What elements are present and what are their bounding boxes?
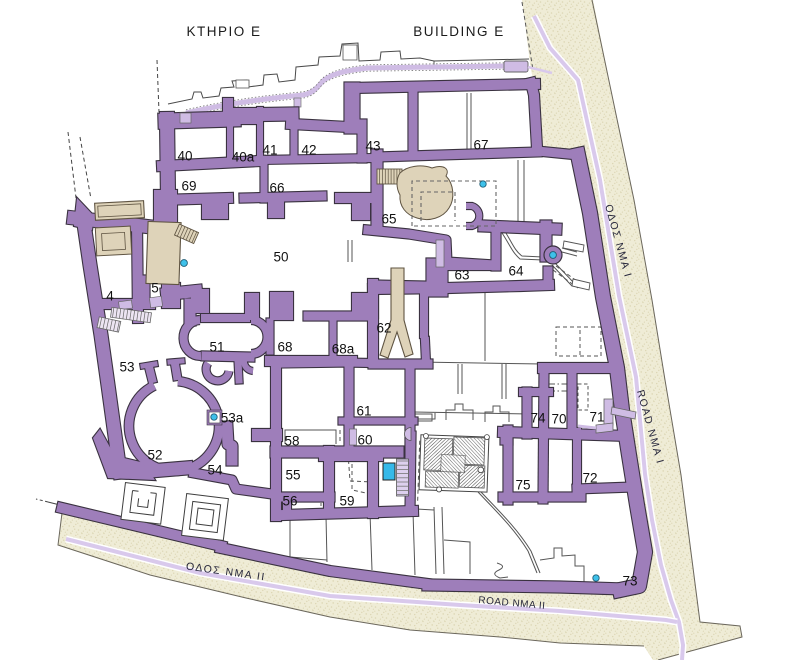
svg-text:54: 54 [207, 463, 223, 478]
svg-text:65: 65 [381, 212, 396, 227]
svg-text:52: 52 [147, 448, 162, 463]
svg-text:68a: 68a [332, 342, 355, 357]
svg-text:74: 74 [530, 411, 546, 426]
svg-text:40: 40 [177, 149, 192, 164]
svg-text:53a: 53a [221, 411, 244, 426]
svg-text:67: 67 [473, 138, 488, 153]
svg-text:55: 55 [285, 468, 300, 483]
svg-text:75: 75 [515, 478, 530, 493]
svg-text:68: 68 [277, 340, 292, 355]
svg-text:59: 59 [339, 494, 354, 509]
svg-text:58: 58 [284, 434, 299, 449]
svg-text:53: 53 [119, 360, 134, 375]
svg-text:63: 63 [454, 268, 469, 283]
svg-text:69: 69 [181, 179, 196, 194]
svg-text:43: 43 [365, 139, 380, 154]
svg-text:40a: 40a [232, 150, 255, 165]
svg-text:66: 66 [269, 181, 284, 196]
svg-text:41: 41 [262, 143, 277, 158]
svg-text:71: 71 [589, 410, 604, 425]
svg-text:ΚΤΗΡΙΟ Ε: ΚΤΗΡΙΟ Ε [186, 24, 261, 39]
svg-text:4: 4 [106, 289, 114, 304]
svg-text:72: 72 [582, 471, 597, 486]
svg-text:5: 5 [151, 281, 159, 296]
svg-text:56: 56 [282, 494, 297, 509]
svg-text:64: 64 [508, 264, 524, 279]
svg-text:60: 60 [357, 433, 372, 448]
svg-text:73: 73 [622, 574, 637, 589]
svg-text:70: 70 [551, 412, 566, 427]
svg-text:61: 61 [356, 404, 371, 419]
svg-text:BUILDING E: BUILDING E [413, 24, 505, 39]
svg-text:50: 50 [273, 250, 288, 265]
svg-text:42: 42 [301, 143, 316, 158]
svg-text:62: 62 [376, 321, 391, 336]
svg-text:51: 51 [209, 340, 224, 355]
